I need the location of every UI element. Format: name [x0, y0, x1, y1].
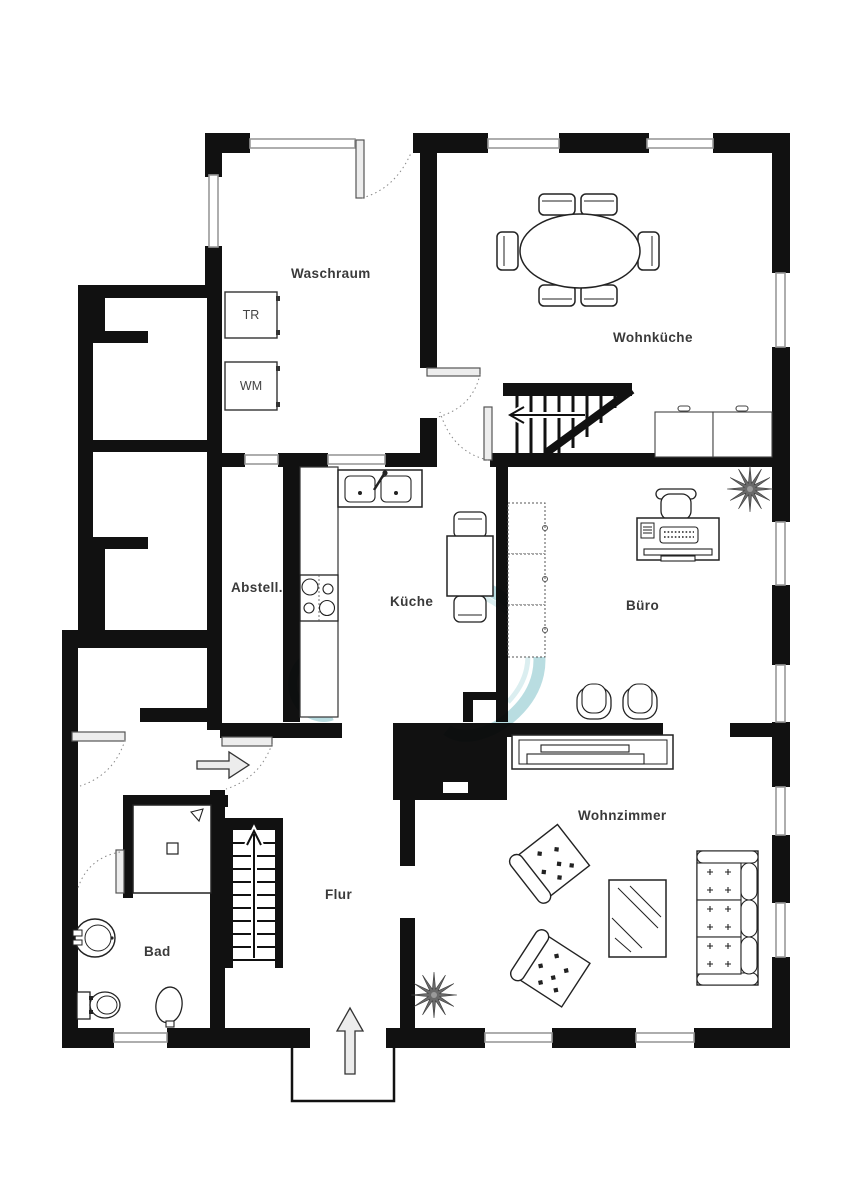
door-swing-arc	[78, 852, 120, 888]
staircase-wohnkueche	[503, 383, 632, 453]
wall-segment	[772, 722, 790, 787]
shower-drain	[167, 843, 178, 854]
cabinet	[655, 412, 713, 457]
room-label-bad: Bad	[144, 944, 171, 959]
wall-segment	[207, 285, 222, 730]
office-chair	[661, 494, 691, 520]
dining-chair	[581, 194, 617, 215]
stove	[300, 575, 338, 621]
window	[328, 455, 385, 464]
porch-outline	[292, 1048, 394, 1101]
kitchen-chair	[454, 596, 486, 622]
kitchen-cabinets-wohnkueche	[655, 406, 772, 457]
room-label-wohnzimmer: Wohnzimmer	[578, 808, 667, 823]
wall-segment	[210, 790, 225, 1028]
window	[114, 1033, 167, 1042]
room-label-wohnkueche: Wohnküche	[613, 330, 693, 345]
wall-segment	[167, 1028, 310, 1048]
wall-segment	[93, 537, 105, 630]
wall-segment	[386, 1028, 485, 1048]
washer-label: WM	[225, 362, 277, 410]
wall-notch	[443, 782, 468, 793]
door-swing-arc	[438, 374, 480, 417]
entrance	[292, 1008, 394, 1101]
wall-segment	[400, 800, 415, 866]
plant	[727, 466, 773, 512]
cabinet	[713, 412, 772, 457]
dining-chair	[497, 232, 518, 270]
door-leaf	[116, 850, 124, 893]
room-label-flur: Flur	[325, 887, 352, 902]
tv-base	[527, 754, 644, 764]
entry-direction	[197, 752, 249, 778]
floor-plan: Waschraum Wohnküche Abstell. Küche Büro …	[0, 0, 848, 1200]
kitchen-counter	[300, 467, 422, 717]
window	[245, 455, 278, 464]
room-label-waschraum: Waschraum	[291, 266, 371, 281]
window	[776, 665, 785, 722]
wall-segment	[62, 630, 222, 648]
shelf-cabinet	[508, 554, 545, 605]
door-leaf	[222, 737, 272, 746]
office-shelves	[508, 503, 548, 657]
sink-unit	[338, 470, 422, 507]
door-leaf	[356, 140, 364, 198]
window	[776, 903, 785, 957]
door-swing-arc	[362, 153, 411, 198]
chair	[582, 684, 606, 713]
wall-segment	[559, 133, 649, 153]
door-leaf	[427, 368, 480, 376]
chair	[628, 684, 652, 713]
dining-chair	[638, 232, 659, 270]
wall-segment	[772, 133, 790, 273]
kitchen-table-set	[447, 512, 493, 622]
window	[776, 787, 785, 835]
armchair	[507, 822, 592, 906]
monitor-stand	[661, 556, 695, 561]
walls	[62, 133, 790, 1048]
coffee-table	[609, 880, 666, 957]
wall-segment	[62, 630, 78, 1048]
sofa-cushion	[697, 937, 741, 974]
wall-segment	[730, 723, 772, 737]
window	[250, 139, 355, 148]
entrance-arrow	[337, 1008, 363, 1074]
armchair	[508, 927, 592, 1009]
shower	[133, 805, 211, 893]
door-swing-arc	[440, 412, 488, 460]
door-swing-arc	[80, 740, 125, 786]
dining-set	[497, 194, 659, 306]
cabinet-handle	[736, 406, 748, 411]
shelf-cabinet	[508, 503, 545, 554]
window	[776, 273, 785, 347]
window	[636, 1033, 694, 1042]
sink-basin	[381, 476, 411, 502]
wall-segment	[78, 285, 208, 298]
dining-chair	[539, 194, 575, 215]
wall-segment	[93, 331, 148, 343]
wall-segment	[772, 347, 790, 522]
dryer-label: TR	[225, 292, 277, 338]
wall-segment	[400, 918, 415, 1028]
desk-with-computer	[637, 489, 719, 561]
entry-arrow	[197, 752, 249, 778]
dining-table	[520, 214, 640, 288]
sofa-armrest	[697, 973, 758, 985]
bidet	[154, 985, 185, 1027]
sofa-back	[741, 863, 757, 900]
sofa	[697, 851, 758, 985]
window	[488, 139, 559, 148]
wall-notch	[473, 700, 496, 722]
plant	[411, 972, 457, 1018]
tv-sideboard	[512, 735, 673, 769]
sofa-armrest	[697, 851, 758, 863]
staircase-flur	[225, 818, 283, 968]
sink-basin	[345, 476, 375, 502]
wall-segment	[140, 708, 210, 722]
wall-segment	[420, 133, 437, 368]
toilet	[77, 992, 120, 1019]
washbasin	[73, 919, 115, 957]
shelf-cabinet	[508, 605, 545, 657]
room-label-buero: Büro	[626, 598, 659, 613]
room-label-abstellraum: Abstell.	[231, 580, 283, 595]
window	[485, 1033, 552, 1042]
wall-segment	[205, 133, 222, 177]
visitor-chairs	[577, 684, 657, 719]
wall-segment	[205, 246, 222, 290]
window	[647, 139, 713, 148]
wall-segment	[552, 1028, 636, 1048]
cabinet-handle	[678, 406, 690, 411]
wall-segment	[772, 835, 790, 903]
wall-segment	[772, 585, 790, 665]
door-leaf	[484, 407, 492, 460]
sofa-cushion	[697, 863, 741, 900]
sofa-cushion	[697, 900, 741, 937]
window	[776, 522, 785, 585]
door-leaf	[72, 732, 125, 741]
wall-segment	[420, 418, 437, 467]
sofa-back	[741, 937, 757, 974]
kitchen-table	[447, 536, 493, 596]
kitchen-chair	[454, 512, 486, 538]
window	[209, 175, 218, 247]
wall-segment	[78, 440, 222, 452]
wall-segment	[222, 453, 245, 467]
keyboard	[660, 527, 698, 543]
monitor	[644, 549, 712, 555]
tv	[541, 745, 629, 752]
sofa-back	[741, 900, 757, 937]
room-label-kueche: Küche	[390, 594, 433, 609]
wall-segment	[78, 285, 93, 645]
wall-segment	[220, 723, 342, 738]
wall-segment	[496, 460, 508, 692]
wall-segment	[694, 1028, 790, 1048]
